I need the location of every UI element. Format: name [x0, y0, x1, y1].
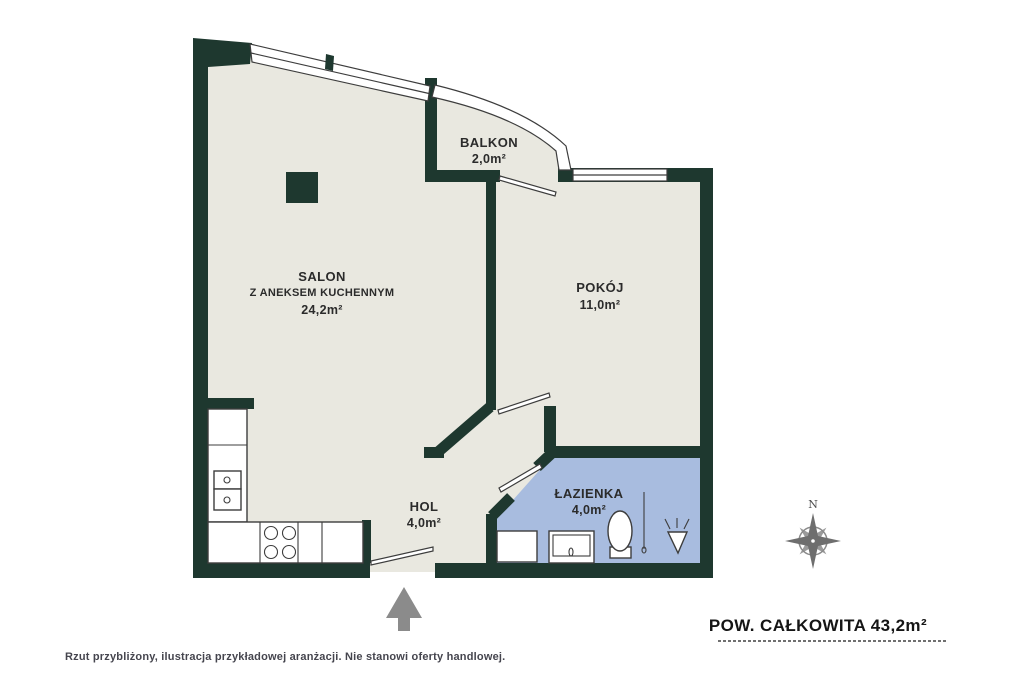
arrow-head — [386, 587, 422, 618]
wall-hol-stub — [424, 447, 444, 458]
arrow-stem — [398, 618, 410, 631]
disclaimer-text: Rzut przybliżony, ilustracja przykładowe… — [65, 651, 505, 663]
balkon-label: BALKON — [460, 135, 518, 150]
floor-plan-page: SALON Z ANEKSEM KUCHENNYM 24,2m² BALKON … — [0, 0, 1024, 683]
compass-center — [811, 539, 815, 543]
compass-north-label: N — [808, 498, 818, 511]
wall-salon-pokoj-divider — [486, 178, 496, 410]
total-area-label: POW. CAŁKOWITA 43,2m² — [709, 616, 927, 635]
wall-pokoj-door-jamb — [544, 406, 556, 452]
sink-icon — [549, 531, 594, 563]
wall-left — [193, 40, 208, 578]
pokoj-area: 11,0m² — [580, 298, 621, 312]
shaft-block — [286, 172, 318, 203]
salon-area: 24,2m² — [301, 303, 342, 317]
wall-bottom-right — [435, 563, 713, 578]
washing-machine-icon — [497, 531, 537, 562]
oven2-icon — [214, 489, 241, 510]
pokoj-label: POKÓJ — [576, 280, 624, 295]
entrance-arrow-icon — [386, 587, 422, 631]
hol-label: HOL — [410, 499, 439, 514]
lazienka-area: 4,0m² — [572, 503, 606, 517]
compass-rose-icon: N — [785, 498, 841, 569]
floor-plan: SALON Z ANEKSEM KUCHENNYM 24,2m² BALKON … — [0, 0, 1024, 683]
wall-lazienka-left — [486, 514, 497, 563]
wall-right — [700, 168, 713, 578]
wall-top-left-corner — [193, 38, 252, 67]
wall-lazienka-top — [546, 446, 713, 458]
wall-bottom-left — [193, 563, 370, 578]
wall-kitchen-stub — [208, 398, 254, 409]
lazienka-label: ŁAZIENKA — [555, 486, 624, 501]
salon-label2: Z ANEKSEM KUCHENNYM — [250, 287, 395, 299]
window-mullion — [325, 54, 334, 71]
hol-area: 4,0m² — [407, 516, 441, 530]
toilet-icon — [608, 511, 632, 551]
balkon-area: 2,0m² — [472, 152, 506, 166]
salon-label: SALON — [298, 269, 346, 284]
oven-icon — [214, 471, 241, 489]
